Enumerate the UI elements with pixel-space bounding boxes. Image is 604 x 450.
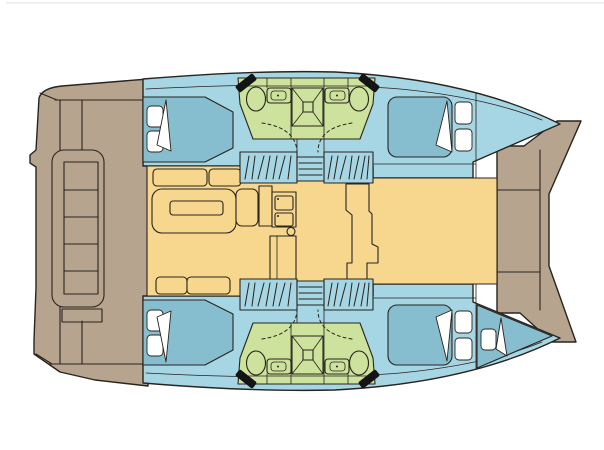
aft-deck [30,79,148,386]
galley-faucet-dot-1 [277,198,279,200]
starboard-toilet-fwd [350,351,369,375]
port-toilet-fwd [350,87,369,111]
pillow [147,335,163,356]
boat-floor-plan-page: Catamaran interior floor plan — top-down… [0,0,604,450]
salon-top-bench-cushion-1 [153,169,207,186]
starboard-toilet-aft [247,351,266,375]
salon-top-bench-cushion-2 [209,169,241,186]
port-steps-fwd [324,152,373,183]
pillow [147,106,163,127]
pillow [455,338,472,360]
port-basin-aft-dot [277,95,279,97]
salon [147,166,497,296]
boat-floor-plan: Catamaran interior floor plan — top-down… [0,0,604,450]
plan-drawing [30,72,581,391]
pillow [455,129,472,151]
galley-faucet-dot-2 [277,215,279,217]
port-toilet-aft [247,87,266,111]
salon-bottom-bench-cushion-2 [187,277,230,294]
port-basin-fwd-dot [336,95,338,97]
salon-side-seat [236,189,258,226]
galley-sink-basin-2 [275,213,293,226]
pillow [481,329,496,350]
galley-counter-strip [259,186,272,226]
starboard-steps-fwd [324,279,373,310]
pillow [455,102,472,124]
salon-bottom-bench-cushion-1 [156,277,187,294]
starboard-basin-aft-dot [277,366,279,368]
pillow [455,311,472,333]
galley-door-handle [287,228,295,236]
starboard-basin-fwd-dot [336,366,338,368]
page-top-border [6,2,604,4]
dinette-table-tray [170,201,223,215]
starboard-shower-drain [303,350,313,360]
port-shower-drain [303,102,313,112]
